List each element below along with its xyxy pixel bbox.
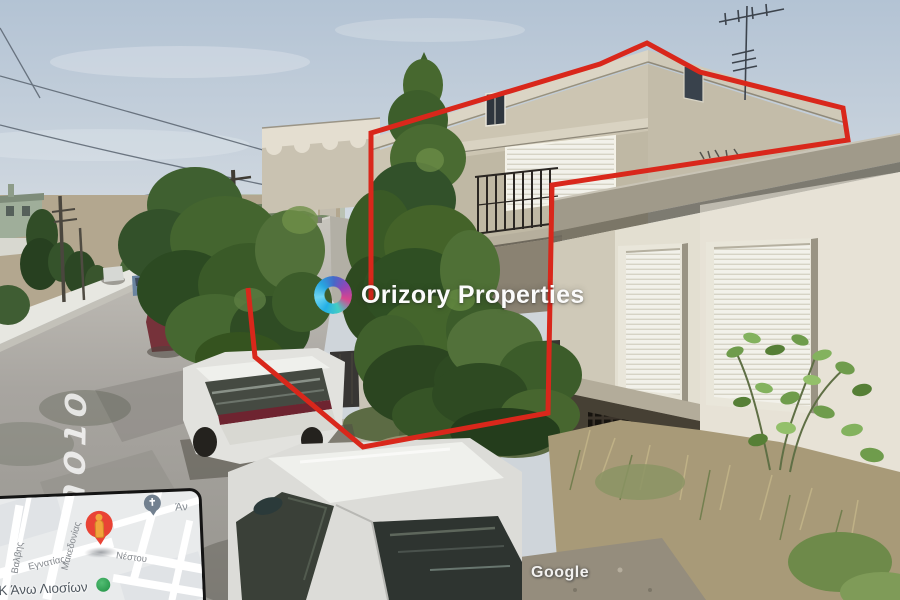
pegman-icon [95,520,105,538]
listing-photo: οτου Orizory Properties Google Βαλβης Μα… [0,0,900,600]
green-place-dot-icon [96,577,111,592]
map-partial-label: Άν [175,501,188,514]
watermark: Orizory Properties [314,276,585,314]
google-watermark: Google [531,564,589,582]
church-cross-glyph: ✝ [148,498,157,508]
map-area-label: Κ Άνω Λιοσίων [0,579,88,598]
brand-logo-icon [314,276,352,314]
map-inset[interactable]: Βαλβης Μακεδονίας Εγνατίας Νέστου Κ Άνω … [0,488,207,600]
location-pin-marker [77,510,123,560]
street-label-egnatias: Εγνατίας [27,554,66,573]
brand-name: Orizory Properties [361,281,585,310]
